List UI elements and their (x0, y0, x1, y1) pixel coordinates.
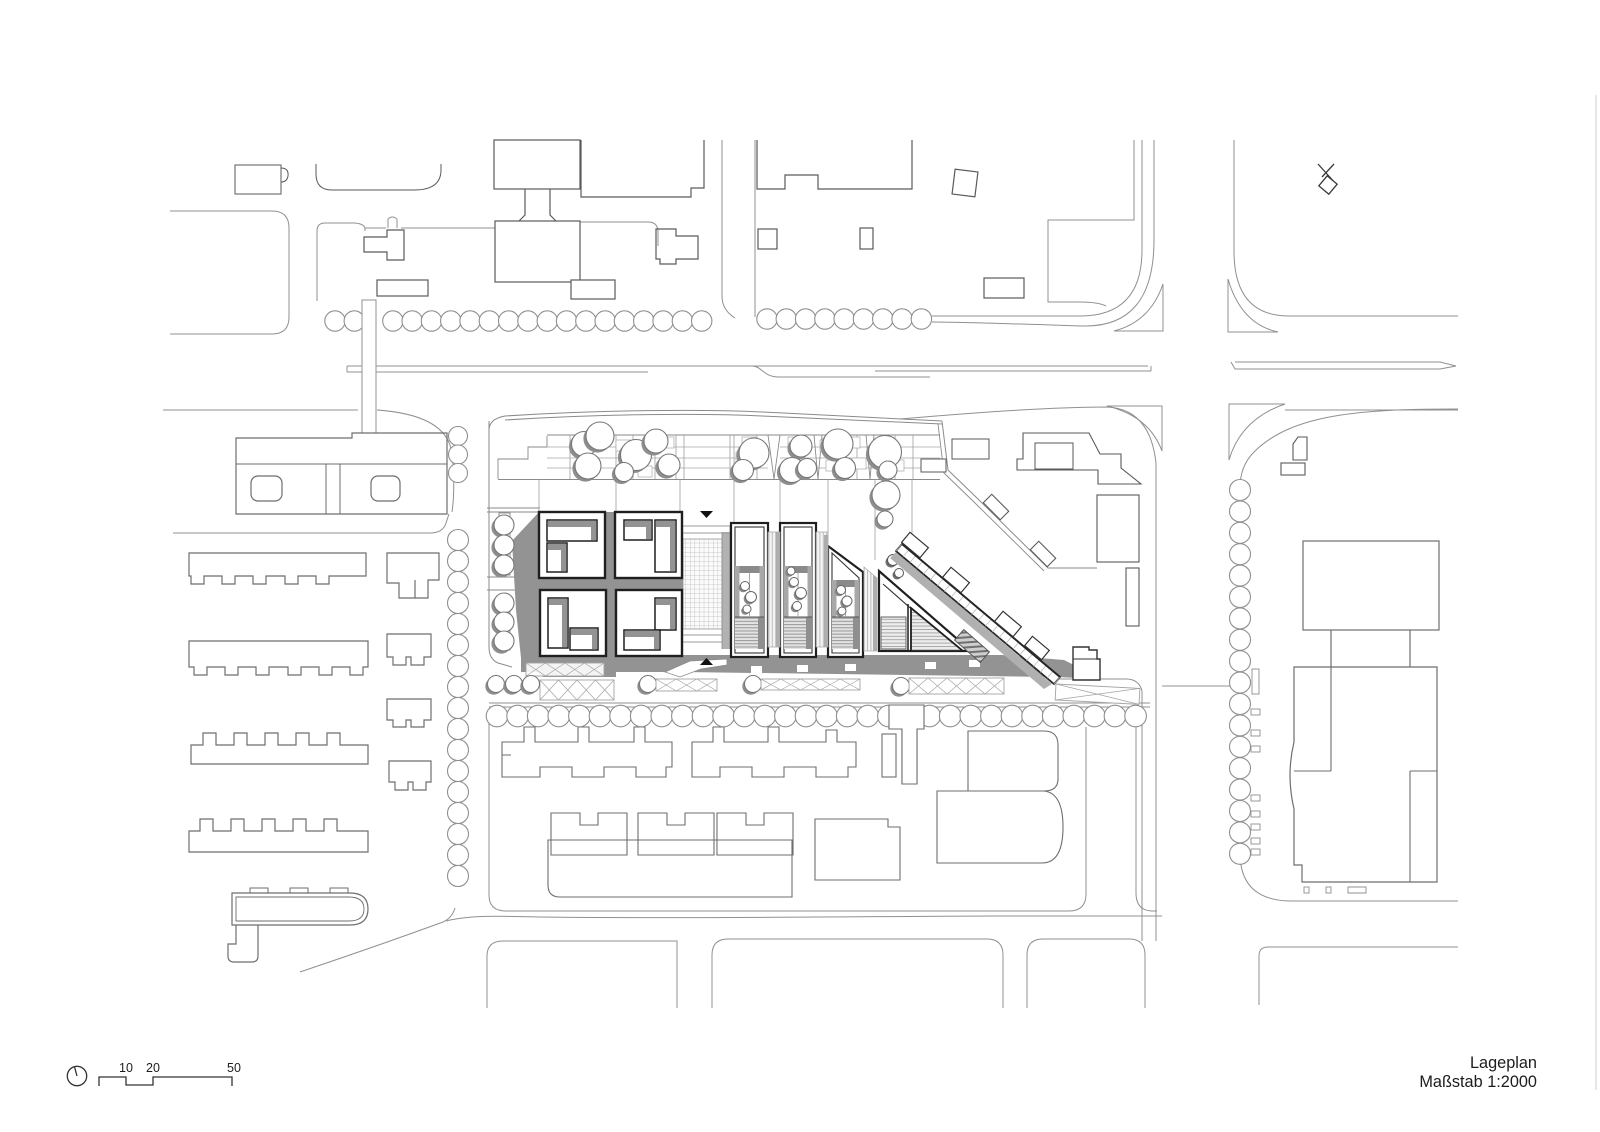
svg-text:Maßstab 1:2000: Maßstab 1:2000 (1419, 1073, 1537, 1091)
svg-text:20: 20 (146, 1061, 160, 1075)
svg-text:50: 50 (227, 1061, 241, 1075)
svg-text:Lageplan: Lageplan (1470, 1054, 1537, 1072)
svg-text:10: 10 (119, 1061, 133, 1075)
